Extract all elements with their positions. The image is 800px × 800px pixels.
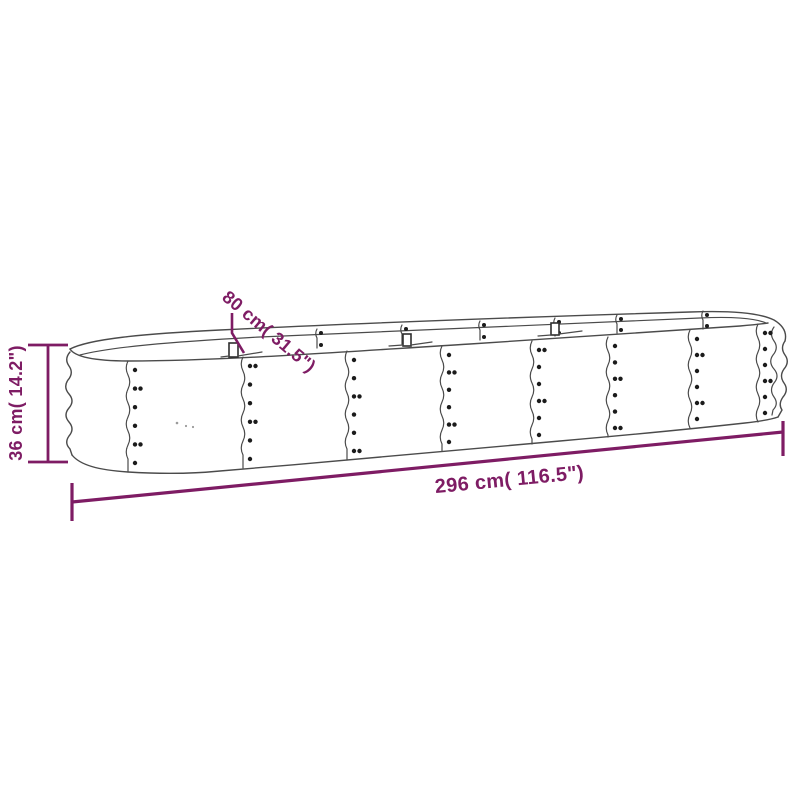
rim-seams: [316, 311, 709, 348]
speck: [185, 425, 187, 427]
right-corrugated-edge-inner: [771, 327, 777, 415]
dimension-length: 296 cm( 116.5"): [72, 421, 783, 521]
rim-clip-middle: [389, 334, 432, 346]
bottom-edge: [72, 417, 778, 473]
planter-drawing: [66, 311, 788, 473]
width-dimension-label: 80 cm( 31.5"): [218, 287, 319, 377]
dimension-diagram: 36 cm( 14.2") 80 cm( 31.5") 296 cm( 116.…: [0, 0, 800, 800]
length-line: [72, 432, 783, 502]
height-dimension-label: 36 cm( 14.2"): [6, 345, 26, 461]
front-lip-edge: [70, 323, 768, 361]
panel-seams: [126, 324, 772, 472]
right-corrugated-edge-outer: [778, 341, 787, 417]
speck: [192, 426, 194, 428]
dimension-diagram-page: 36 cm( 14.2") 80 cm( 31.5") 296 cm( 116.…: [0, 0, 800, 800]
dimension-width: 80 cm( 31.5"): [218, 287, 319, 377]
rim-inner-edge: [80, 317, 766, 355]
length-dimension-label: 296 cm( 116.5"): [434, 462, 585, 498]
speck: [176, 422, 179, 425]
dimension-height: 36 cm( 14.2"): [6, 345, 68, 462]
left-corrugated-edge: [66, 352, 72, 455]
